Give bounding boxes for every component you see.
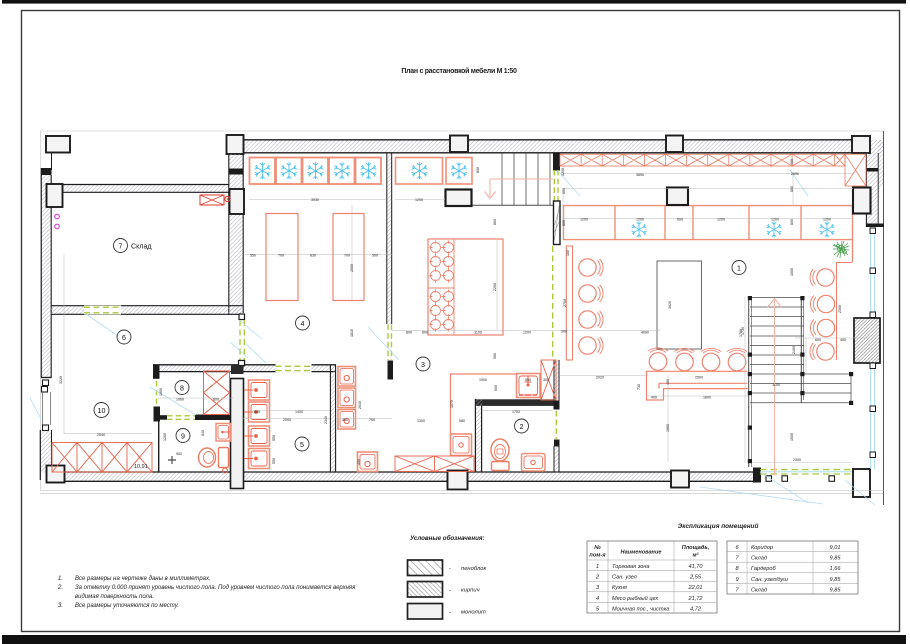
svg-text:2: 2: [520, 423, 524, 431]
svg-text:760: 760: [369, 418, 375, 422]
svg-text:Кухня: Кухня: [612, 585, 627, 591]
svg-text:видимая поверхность пола.: видимая поверхность пола.: [75, 594, 154, 600]
svg-text:580: 580: [459, 419, 465, 423]
svg-text:1700: 1700: [512, 410, 520, 414]
svg-text:2000: 2000: [350, 264, 354, 272]
svg-text:9: 9: [735, 577, 738, 583]
svg-text:2700: 2700: [563, 299, 567, 307]
svg-text:Склад: Склад: [751, 556, 767, 562]
svg-text:1200: 1200: [636, 218, 644, 222]
svg-text:9,85: 9,85: [830, 577, 842, 583]
svg-text:4: 4: [596, 596, 599, 602]
svg-text:пеноблок: пеноблок: [461, 566, 486, 572]
svg-text:2200: 2200: [493, 283, 497, 291]
svg-text:500: 500: [493, 353, 497, 359]
svg-text:1: 1: [737, 264, 741, 272]
svg-text:1.: 1.: [58, 576, 63, 582]
svg-text:пом-я: пом-я: [589, 553, 606, 559]
svg-text:800: 800: [406, 331, 412, 335]
svg-text:кирпич: кирпич: [461, 588, 480, 594]
svg-text:Экспликация помещений: Экспликация помещений: [678, 522, 759, 530]
svg-text:730: 730: [637, 384, 641, 390]
svg-text:600: 600: [213, 398, 219, 402]
svg-text:2020: 2020: [596, 376, 604, 380]
svg-text:9: 9: [181, 432, 185, 440]
svg-text:550: 550: [250, 254, 256, 258]
svg-text:2300: 2300: [838, 305, 842, 313]
svg-text:Площадь,: Площадь,: [682, 545, 710, 551]
svg-text:1000: 1000: [159, 388, 163, 396]
svg-text:1: 1: [596, 564, 599, 570]
svg-text:3: 3: [421, 361, 425, 369]
svg-text:2000: 2000: [283, 418, 291, 422]
svg-text:600: 600: [815, 338, 821, 342]
svg-text:9,85: 9,85: [830, 587, 842, 593]
svg-text:22,01: 22,01: [688, 585, 703, 591]
svg-text:1200: 1200: [523, 331, 531, 335]
svg-text:6: 6: [122, 334, 126, 342]
svg-text:4,72: 4,72: [690, 606, 702, 612]
svg-text:1800: 1800: [703, 396, 711, 400]
svg-text:монолит: монолит: [461, 610, 486, 616]
svg-text:800: 800: [790, 219, 794, 225]
svg-text:1100: 1100: [772, 383, 780, 387]
svg-text:700: 700: [344, 254, 350, 258]
svg-text:41,70: 41,70: [689, 564, 704, 570]
svg-text:1200: 1200: [561, 168, 565, 176]
svg-text:400: 400: [666, 379, 670, 385]
svg-text:7: 7: [735, 556, 739, 562]
svg-text:550: 550: [272, 435, 276, 441]
svg-text:1200: 1200: [717, 218, 725, 222]
svg-text:2.: 2.: [57, 585, 63, 591]
svg-text:1900: 1900: [666, 424, 670, 432]
svg-text:7: 7: [119, 242, 123, 250]
svg-text:3690: 3690: [636, 173, 644, 177]
svg-text:400: 400: [840, 338, 846, 342]
svg-text:3.: 3.: [58, 603, 63, 609]
svg-text:2: 2: [595, 575, 600, 581]
svg-text:2690: 2690: [791, 172, 799, 176]
svg-text:-: -: [449, 566, 451, 572]
svg-text:Гардероб: Гардероб: [751, 566, 777, 572]
svg-text:900: 900: [176, 452, 182, 456]
svg-text:3020: 3020: [668, 301, 672, 309]
svg-text:3220: 3220: [59, 376, 63, 384]
svg-text:Все размеры уточняются по мест: Все размеры уточняются по месту.: [75, 603, 179, 609]
svg-text:1070: 1070: [450, 400, 454, 408]
svg-text:600: 600: [254, 410, 260, 414]
svg-text:Мясо рыбный цех: Мясо рыбный цех: [612, 595, 658, 602]
svg-text:Склад: Склад: [131, 243, 152, 251]
svg-text:1400: 1400: [295, 410, 303, 414]
svg-text:10: 10: [98, 407, 106, 415]
svg-text:830: 830: [310, 254, 316, 258]
svg-text:1300: 1300: [417, 419, 425, 423]
svg-text:Все размеры на чертеже даны в: Все размеры на чертеже даны в миллиметра…: [75, 576, 211, 582]
svg-text:550: 550: [525, 378, 531, 382]
svg-text:840: 840: [201, 430, 205, 436]
svg-text:1200: 1200: [415, 198, 423, 202]
svg-text:-: -: [449, 588, 451, 594]
svg-text:1060: 1060: [176, 398, 184, 402]
svg-text:Условные обозначения:: Условные обозначения:: [410, 535, 485, 542]
svg-text:Коридор: Коридор: [751, 545, 773, 551]
svg-text:1,66: 1,66: [830, 566, 842, 572]
svg-text:450: 450: [357, 459, 361, 465]
svg-text:2500: 2500: [695, 376, 703, 380]
svg-text:3: 3: [596, 585, 600, 591]
svg-text:8: 8: [180, 384, 184, 392]
svg-text:Сан. узел/душ: Сан. узел/душ: [751, 577, 788, 583]
svg-text:5: 5: [596, 606, 600, 612]
svg-text:Склад: Склад: [751, 587, 767, 593]
svg-text:550: 550: [272, 458, 276, 464]
svg-text:м²: м²: [692, 552, 698, 559]
svg-text:4090: 4090: [641, 331, 649, 335]
svg-text:1200: 1200: [580, 218, 588, 222]
svg-text:№: №: [594, 545, 601, 551]
svg-text:800: 800: [493, 219, 497, 225]
svg-text:800: 800: [562, 220, 566, 226]
svg-text:10,91: 10,91: [134, 464, 148, 470]
svg-text:1500: 1500: [790, 433, 794, 441]
svg-text:400: 400: [651, 396, 657, 400]
svg-text:800: 800: [476, 167, 480, 173]
svg-text:8: 8: [735, 566, 739, 572]
svg-text:-: -: [449, 610, 451, 616]
svg-text:9,01: 9,01: [830, 545, 841, 551]
svg-text:800: 800: [790, 186, 794, 192]
svg-text:1200: 1200: [771, 218, 779, 222]
svg-text:100: 100: [566, 250, 570, 256]
svg-text:600: 600: [677, 218, 683, 222]
svg-text:1000: 1000: [790, 268, 794, 276]
svg-text:1900: 1900: [479, 378, 487, 382]
svg-text:2300: 2300: [793, 458, 801, 462]
svg-text:5: 5: [300, 441, 304, 449]
svg-text:2,55: 2,55: [689, 575, 702, 581]
svg-text:700: 700: [278, 254, 284, 258]
svg-text:2540: 2540: [97, 433, 105, 437]
svg-text:Сан. узел: Сан. узел: [612, 575, 638, 581]
svg-text:1200: 1200: [163, 433, 167, 441]
svg-text:600: 600: [422, 331, 428, 335]
svg-text:За отметку 0.000 принят уровен: За отметку 0.000 принят уровень чистого …: [75, 585, 356, 591]
svg-text:300: 300: [543, 378, 549, 382]
svg-text:21,72: 21,72: [688, 596, 704, 602]
svg-text:4: 4: [301, 320, 305, 328]
svg-text:Моичная пос., чистка: Моичная пос., чистка: [612, 606, 669, 612]
svg-text:600: 600: [494, 385, 498, 391]
svg-text:7: 7: [735, 587, 739, 593]
svg-text:План с расстановкой мебели М 1: План с расстановкой мебели М 1:50: [401, 67, 517, 75]
svg-text:450: 450: [342, 418, 348, 422]
svg-text:1100: 1100: [474, 331, 482, 335]
svg-text:1700: 1700: [739, 329, 743, 337]
svg-text:2010: 2010: [358, 401, 362, 409]
svg-text:2400: 2400: [792, 346, 796, 354]
svg-text:Наименование: Наименование: [621, 550, 662, 556]
svg-text:1200: 1200: [823, 218, 831, 222]
svg-text:3030: 3030: [311, 198, 319, 202]
svg-text:300: 300: [561, 330, 567, 334]
svg-text:400: 400: [790, 159, 794, 165]
svg-text:500: 500: [372, 254, 378, 258]
svg-text:6: 6: [735, 545, 739, 551]
svg-text:1810: 1810: [350, 329, 354, 337]
svg-text:2340: 2340: [324, 416, 328, 424]
svg-text:600: 600: [562, 188, 566, 194]
svg-text:9,85: 9,85: [830, 556, 842, 562]
svg-text:Торговая зона: Торговая зона: [612, 564, 650, 570]
